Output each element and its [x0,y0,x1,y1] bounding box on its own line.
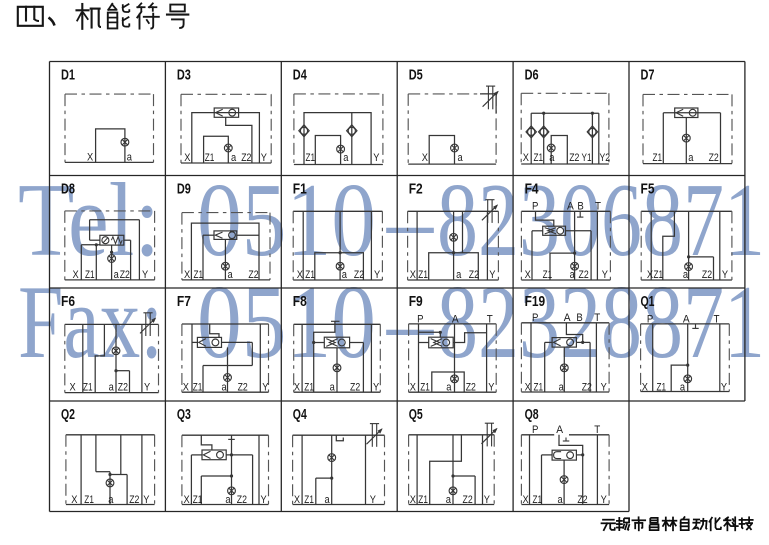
svg-text:X: X [410,269,417,281]
svg-text:a: a [108,494,114,506]
svg-text:Y: Y [721,382,728,394]
svg-text:Z2: Z2 [237,494,247,506]
svg-text:D3: D3 [177,68,191,84]
svg-text:T: T [594,424,600,436]
svg-text:Y: Y [601,494,608,506]
svg-text:Z2: Z2 [354,269,364,281]
svg-text:X: X [642,382,649,394]
svg-text:Z1: Z1 [193,382,203,394]
svg-text:Z2: Z2 [709,152,719,164]
svg-text:Z1: Z1 [653,152,663,164]
svg-text:Q8: Q8 [525,407,539,423]
svg-text:Y: Y [262,382,269,394]
svg-text:Y: Y [484,494,491,506]
svg-text:Q2: Q2 [61,407,75,423]
svg-text:Z2: Z2 [350,382,360,394]
svg-text:A: A [564,312,571,324]
svg-text:X: X [70,382,77,394]
svg-text:P: P [532,424,538,436]
svg-text:Y1: Y1 [582,152,592,164]
svg-text:Z1: Z1 [83,382,93,394]
svg-text:Z1: Z1 [418,269,428,281]
svg-text:Y2: Y2 [600,152,611,164]
svg-text:X: X [297,269,304,281]
svg-text:a: a [342,269,348,281]
svg-text:X: X [410,382,417,394]
svg-text:D8: D8 [61,182,75,198]
svg-text:T: T [714,313,720,325]
svg-text:Z2: Z2 [463,494,473,506]
svg-text:X: X [87,152,94,164]
svg-text:a: a [446,494,452,506]
svg-text:F5: F5 [641,182,655,198]
svg-text:Z2: Z2 [582,382,592,394]
svg-text:Z1: Z1 [420,382,430,394]
svg-text:Z1: Z1 [657,382,667,394]
svg-text:D6: D6 [525,68,539,84]
svg-text:P: P [417,313,423,325]
svg-text:F8: F8 [293,294,307,310]
svg-text:X: X [647,269,654,281]
svg-text:Z1: Z1 [654,269,664,281]
svg-text:X: X [294,494,301,506]
svg-text:X: X [184,494,191,506]
svg-text:P: P [532,201,538,213]
svg-text:Q3: Q3 [177,407,191,423]
svg-text:X: X [73,269,80,281]
svg-text:Z1: Z1 [534,382,544,394]
svg-text:Y: Y [722,269,729,281]
svg-text:X: X [523,152,530,164]
svg-text:F7: F7 [177,294,191,310]
svg-text:A: A [452,313,459,325]
svg-text:X: X [523,494,530,506]
svg-text:T: T [487,313,493,325]
svg-text:Z1: Z1 [543,269,553,281]
svg-text:0510: 0510 [197,161,376,278]
svg-text:Z1: Z1 [305,269,315,281]
svg-text:X: X [183,382,190,394]
svg-text:Z2: Z2 [466,382,476,394]
svg-text:Y: Y [374,269,381,281]
svg-text:a: a [228,269,234,281]
svg-text:X: X [525,382,532,394]
svg-text:X: X [71,494,78,506]
svg-text:Z1: Z1 [193,494,203,506]
svg-text:Y: Y [373,152,380,164]
svg-text:F6: F6 [61,294,75,310]
svg-text:a: a [558,494,564,506]
svg-text:a: a [231,152,237,164]
svg-text:Z1: Z1 [84,494,94,506]
svg-text:Z2: Z2 [469,269,479,281]
svg-text:F19: F19 [525,294,546,310]
svg-text:Z2: Z2 [579,269,589,281]
svg-text:F1: F1 [293,182,307,198]
svg-text:F2: F2 [409,182,423,198]
svg-text:X: X [422,152,429,164]
svg-text:a: a [559,382,565,394]
svg-text:X: X [184,152,191,164]
svg-text:Z2: Z2 [118,382,128,394]
svg-text:Y: Y [143,494,150,506]
svg-text:a: a [688,152,694,164]
svg-text:Q5: Q5 [409,407,423,423]
svg-text:Y: Y [602,269,609,281]
svg-text:Z1: Z1 [304,382,314,394]
svg-text:T: T [595,201,601,213]
svg-text:A: A [567,201,574,213]
svg-text:Y: Y [144,382,151,394]
svg-text:A: A [556,424,563,436]
svg-text:a: a [570,269,576,281]
svg-text:a: a [456,269,462,281]
svg-text:a: a [458,152,464,164]
svg-text:D4: D4 [293,68,307,84]
svg-text:a: a [127,152,133,164]
svg-text:a: a [109,382,115,394]
svg-text:Y: Y [373,382,380,394]
svg-text:Y: Y [489,269,496,281]
svg-text:a: a [225,494,231,506]
svg-text:D5: D5 [409,68,423,84]
svg-text:Y: Y [142,269,149,281]
svg-text:a: a [222,382,228,394]
svg-text:Z1: Z1 [194,269,204,281]
svg-text:X: X [294,382,301,394]
svg-text:Z2: Z2 [248,269,258,281]
svg-text:Z1: Z1 [533,494,543,506]
svg-text:B: B [576,312,582,324]
svg-text:Y: Y [370,494,377,506]
svg-text:Y: Y [488,382,495,394]
svg-text:F4: F4 [525,182,539,198]
svg-text:Z1: Z1 [205,152,215,164]
svg-text:D1: D1 [61,68,75,84]
svg-text:82306871: 82306871 [437,161,765,278]
svg-text:Z2: Z2 [120,269,130,281]
svg-text:a: a [325,494,331,506]
svg-text:Z2: Z2 [569,152,579,164]
svg-text:a: a [549,152,555,164]
svg-text:Q4: Q4 [293,407,307,423]
svg-text:Z2: Z2 [577,494,587,506]
svg-text:Z2: Z2 [238,382,248,394]
svg-text:a: a [343,152,349,164]
svg-text:Q1: Q1 [641,294,655,310]
svg-text:X: X [184,269,191,281]
svg-text:—: — [386,161,434,278]
svg-text:A: A [683,313,690,325]
svg-text:D7: D7 [641,68,655,84]
svg-text:Y: Y [261,494,268,506]
svg-text:Z2: Z2 [702,269,712,281]
svg-text:D9: D9 [177,182,191,198]
svg-text:P: P [647,313,653,325]
svg-text:Y: Y [601,382,608,394]
svg-text:T: T [594,312,600,324]
svg-text:Z1: Z1 [534,152,544,164]
svg-text:Z2: Z2 [129,494,139,506]
svg-text:X: X [525,269,532,281]
svg-text:Z1: Z1 [306,152,316,164]
svg-text:a: a [683,269,689,281]
svg-text:a: a [330,382,336,394]
svg-text:F9: F9 [409,294,423,310]
svg-text:X: X [410,494,417,506]
svg-text:a: a [680,382,686,394]
svg-text:Z1: Z1 [304,494,314,506]
svg-text:B: B [577,201,583,213]
svg-text:a: a [446,382,452,394]
svg-text:P: P [532,312,538,324]
svg-text:Z1: Z1 [85,269,95,281]
svg-text:Z1: Z1 [418,494,428,506]
svg-text:a: a [114,269,120,281]
svg-text:Z2: Z2 [241,152,251,164]
svg-text:Y: Y [261,152,268,164]
